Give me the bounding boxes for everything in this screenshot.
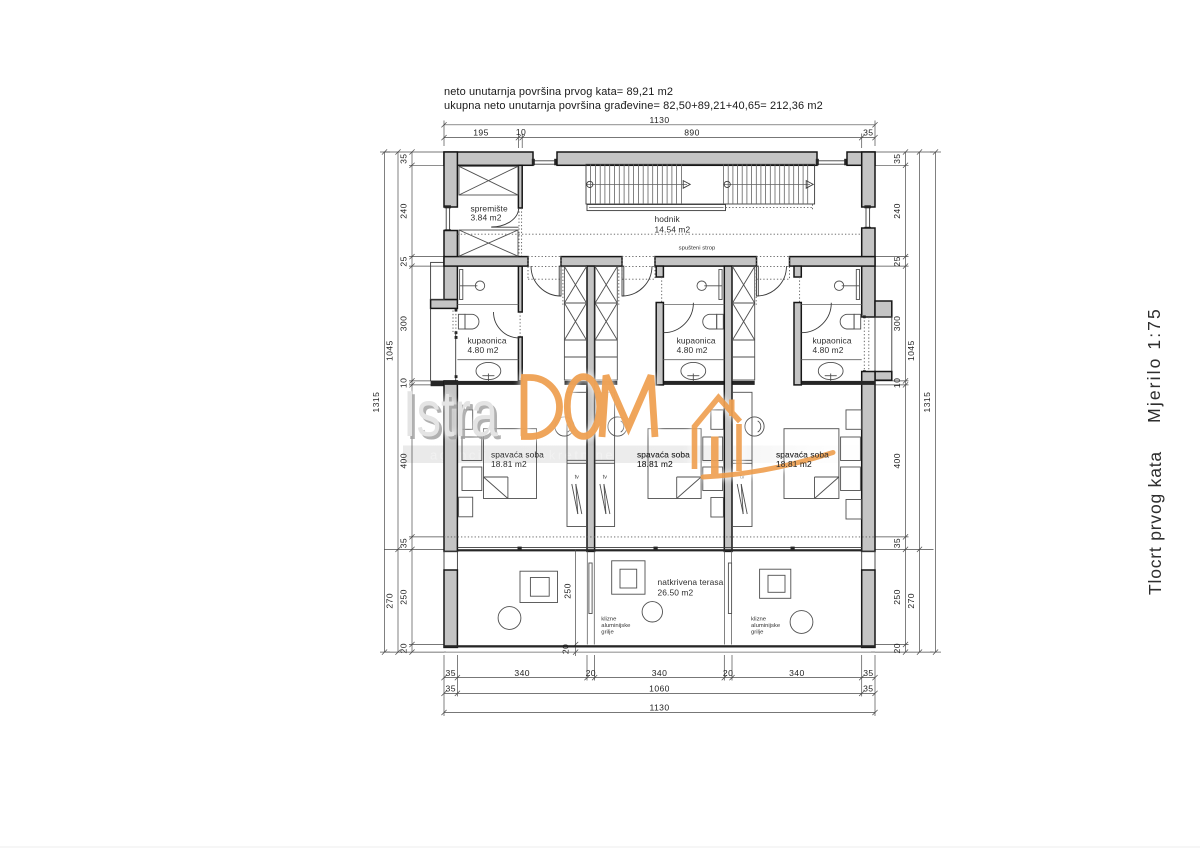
svg-text:1060: 1060 [649,684,670,694]
svg-text:tv: tv [603,475,607,481]
svg-text:grilje: grilje [751,629,764,635]
svg-text:kupaonica: kupaonica [813,336,852,346]
svg-text:spavaća soba: spavaća soba [776,450,829,460]
svg-text:4.80 m2: 4.80 m2 [813,345,844,355]
svg-text:spavaća soba: spavaća soba [637,450,690,460]
svg-text:35: 35 [398,538,408,548]
svg-text:35: 35 [863,684,873,694]
svg-text:20: 20 [723,668,733,678]
svg-text:240: 240 [398,203,408,219]
svg-text:1045: 1045 [906,340,916,361]
svg-text:1315: 1315 [371,392,381,413]
svg-text:spušteni strop: spušteni strop [679,246,716,252]
svg-text:10: 10 [892,378,902,388]
svg-text:10: 10 [516,127,526,137]
svg-text:Tlocrt prvog kata: Tlocrt prvog kata [1145,451,1165,595]
svg-text:18.81 m2: 18.81 m2 [491,459,527,469]
svg-text:aluminijske: aluminijske [751,623,781,629]
svg-text:26.50 m2: 26.50 m2 [658,588,694,598]
svg-text:250: 250 [892,589,902,605]
svg-text:1315: 1315 [922,392,932,413]
svg-text:270: 270 [906,593,916,609]
svg-text:35: 35 [863,668,873,678]
svg-text:20: 20 [892,643,902,653]
svg-text:4.80 m2: 4.80 m2 [677,345,708,355]
svg-text:3.84 m2: 3.84 m2 [471,213,502,223]
svg-text:1130: 1130 [649,702,669,712]
svg-text:240: 240 [892,203,902,219]
svg-text:400: 400 [892,453,902,469]
svg-text:340: 340 [789,668,805,678]
svg-text:aluminijske: aluminijske [601,623,631,629]
svg-text:hodnik: hodnik [655,214,681,224]
svg-text:400: 400 [398,453,408,469]
svg-text:25: 25 [892,256,902,266]
svg-text:20: 20 [586,668,596,678]
svg-text:35: 35 [892,154,902,164]
svg-text:natkrivena terasa: natkrivena terasa [658,577,724,587]
svg-text:klizne: klizne [751,616,767,622]
svg-text:270: 270 [384,593,394,609]
svg-text:tv: tv [575,475,579,481]
svg-text:grilje: grilje [601,629,614,635]
svg-text:klizne: klizne [601,616,617,622]
svg-text:35: 35 [892,538,902,548]
svg-text:18.81 m2: 18.81 m2 [637,459,673,469]
svg-text:neto unutarnja površina prvog: neto unutarnja površina prvog kata= 89,2… [444,86,673,98]
svg-text:250: 250 [563,583,573,599]
svg-text:195: 195 [473,127,489,137]
svg-text:35: 35 [398,154,408,164]
svg-text:300: 300 [892,316,902,332]
svg-text:18.81 m2: 18.81 m2 [776,459,812,469]
svg-text:25: 25 [398,256,408,266]
svg-text:ukupna neto unutarnja površina: ukupna neto unutarnja površina građevine… [444,100,823,112]
svg-text:340: 340 [652,668,668,678]
svg-text:35: 35 [446,684,456,694]
svg-text:kupaonica: kupaonica [468,336,507,346]
svg-text:250: 250 [398,589,408,605]
svg-text:14.54 m2: 14.54 m2 [655,224,691,234]
svg-text:1045: 1045 [384,340,394,361]
svg-text:Istra: Istra [403,377,499,450]
svg-text:890: 890 [684,127,700,137]
svg-text:35: 35 [446,668,456,678]
svg-text:1130: 1130 [649,115,669,125]
svg-text:Mjerilo 1:75: Mjerilo 1:75 [1144,307,1164,423]
svg-text:4.80 m2: 4.80 m2 [468,345,499,355]
svg-text:kupaonica: kupaonica [677,336,716,346]
svg-text:340: 340 [514,668,530,678]
svg-text:35: 35 [863,127,873,137]
svg-text:300: 300 [398,316,408,332]
